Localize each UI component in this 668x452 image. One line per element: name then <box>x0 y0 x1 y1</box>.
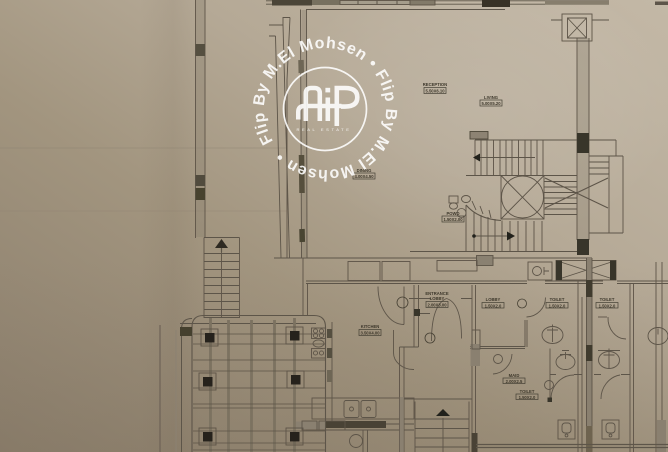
svg-text:TOILET: TOILET <box>550 297 565 302</box>
svg-text:5.50X6.10: 5.50X6.10 <box>425 89 445 94</box>
svg-text:5.00X5.20: 5.00X5.20 <box>481 101 501 106</box>
svg-text:1.50X2.0: 1.50X2.0 <box>599 304 616 309</box>
svg-text:REAL ESTATE: REAL ESTATE <box>297 127 352 132</box>
svg-text:1.50X2.0: 1.50X2.0 <box>549 304 566 309</box>
svg-text:2.00X2.5: 2.00X2.5 <box>506 379 523 384</box>
svg-text:TOILET: TOILET <box>600 297 615 302</box>
svg-text:KITCHEN: KITCHEN <box>361 324 380 329</box>
svg-text:2.00X3.00: 2.00X3.00 <box>427 303 447 308</box>
svg-text:LOBBY: LOBBY <box>430 296 445 301</box>
svg-text:POWD: POWD <box>446 211 459 216</box>
svg-text:RECEPTION: RECEPTION <box>423 82 447 87</box>
svg-text:1.50X2.00: 1.50X2.00 <box>443 217 463 222</box>
svg-text:TOILET: TOILET <box>520 389 535 394</box>
svg-text:LOBBY: LOBBY <box>486 297 501 302</box>
svg-text:4.00X4.50: 4.00X4.50 <box>354 174 374 179</box>
svg-text:1.50X2.0: 1.50X2.0 <box>519 395 536 400</box>
svg-text:LIVING: LIVING <box>484 95 498 100</box>
svg-text:MAID: MAID <box>509 373 520 378</box>
svg-text:3.50X4.00: 3.50X4.00 <box>360 331 380 336</box>
svg-text:1.50X2.0: 1.50X2.0 <box>485 304 502 309</box>
